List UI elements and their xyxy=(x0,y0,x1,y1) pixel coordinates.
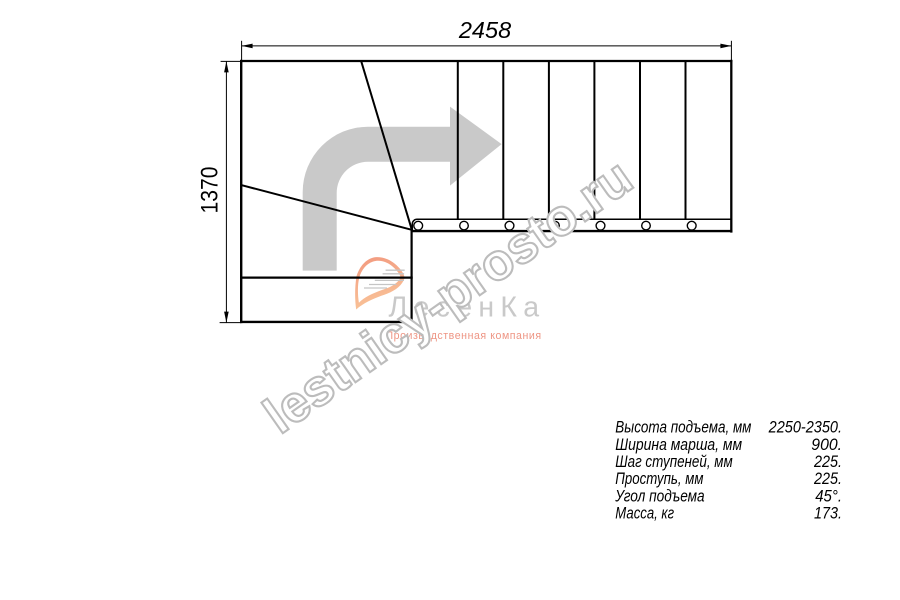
svg-text:225.: 225. xyxy=(813,453,842,471)
svg-text:Угол подъема: Угол подъема xyxy=(614,487,704,506)
svg-text:225.: 225. xyxy=(813,470,842,488)
svg-text:Проступь, мм: Проступь, мм xyxy=(615,470,704,489)
svg-text:173.: 173. xyxy=(814,505,842,523)
svg-text:Ширина марша, мм: Ширина марша, мм xyxy=(615,436,742,454)
svg-text:900.: 900. xyxy=(811,435,842,454)
svg-text:45°.: 45°. xyxy=(815,488,842,506)
svg-text:Шаг ступеней, мм: Шаг ступеней, мм xyxy=(615,453,733,472)
svg-text:Высота подъема, мм: Высота подъема, мм xyxy=(615,418,752,437)
svg-text:1370: 1370 xyxy=(197,167,224,214)
svg-text:2458: 2458 xyxy=(458,17,511,43)
svg-text:Масса, кг: Масса, кг xyxy=(615,504,674,523)
svg-text:2250-2350.: 2250-2350. xyxy=(768,419,842,437)
